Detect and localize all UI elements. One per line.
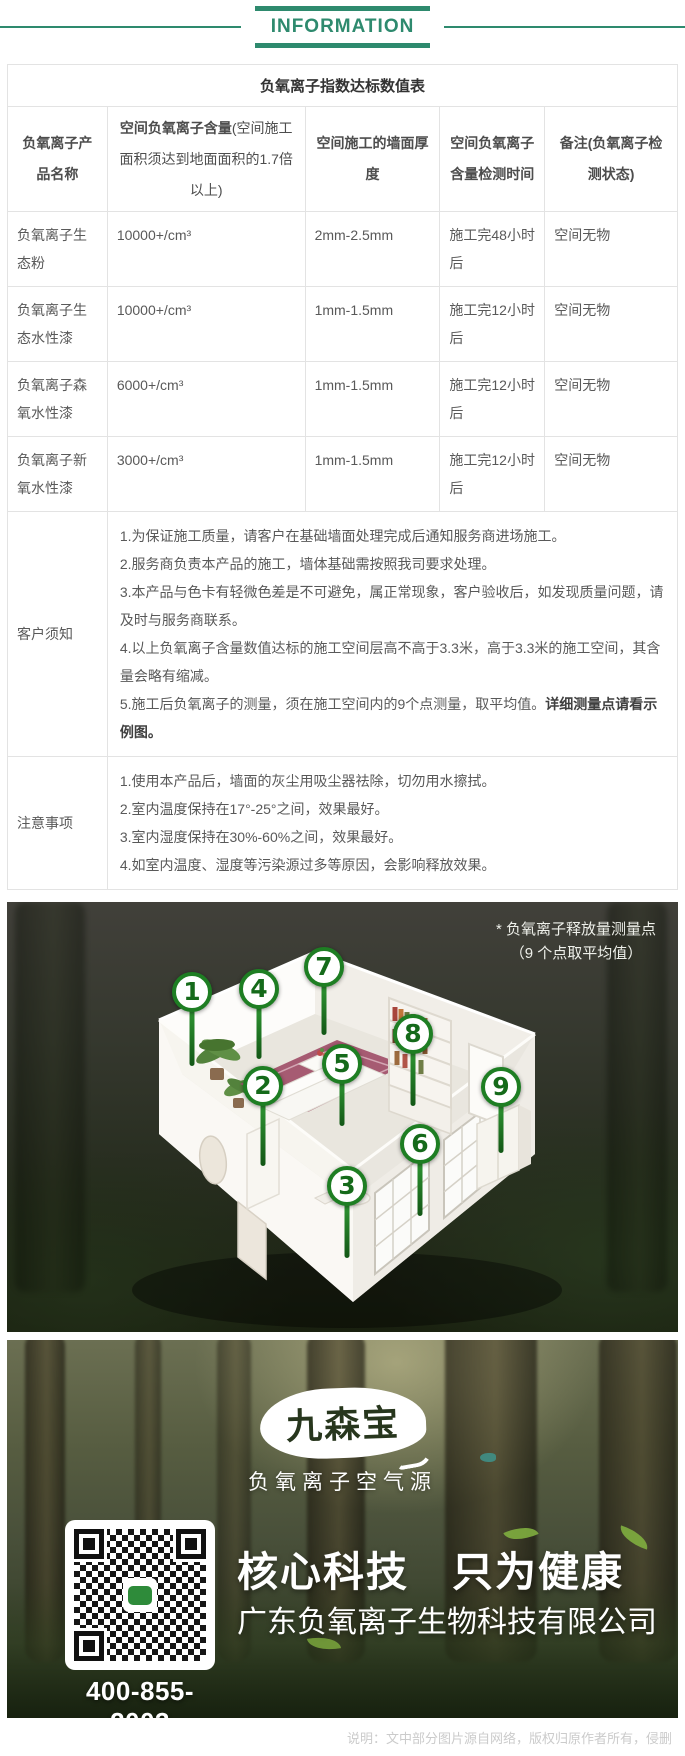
- table-header-row: 负氧离子产品名称 空间负氧离子含量(空间施工面积须达到地面面积的1.7倍以上) …: [8, 107, 678, 212]
- row3-product: 负氧离子森氧水性漆: [8, 362, 108, 437]
- qr-code: [65, 1520, 215, 1670]
- row2-product: 负氧离子生态水性漆: [8, 287, 108, 362]
- qr-pattern: [74, 1529, 206, 1661]
- attention-label: 注意事项: [8, 757, 108, 890]
- row2-test-time: 施工完12小时后: [440, 287, 545, 362]
- company-name: 广东负氧离子生物科技有限公司: [237, 1597, 673, 1641]
- figure-note-line1: * 负氧离子释放量测量点: [496, 918, 656, 941]
- row3-content: 6000+/cm³: [107, 362, 305, 437]
- col-header-test-time: 空间负氧离子含量检测时间: [440, 107, 545, 212]
- row1-test-time: 施工完48小时后: [440, 212, 545, 287]
- notice-item-3: 3.本产品与色卡有轻微色差是不可避免，属正常现象，客户验收后，如发现质量问题，请…: [120, 578, 665, 634]
- attention-content: 1.使用本产品后，墙面的灰尘用吸尘器祛除，切勿用水擦拭。 2.室内温度保持在17…: [107, 757, 677, 890]
- measure-point-8-label: 8: [393, 1014, 433, 1054]
- measure-point-4-label: 4: [239, 969, 279, 1009]
- col-header-product: 负氧离子产品名称: [8, 107, 108, 212]
- customer-notice-label: 客户须知: [8, 512, 108, 757]
- row4-content: 3000+/cm³: [107, 437, 305, 512]
- measure-point-7: 7: [304, 947, 344, 987]
- table-row: 负氧离子森氧水性漆 6000+/cm³ 1mm-1.5mm 施工完12小时后 空…: [8, 362, 678, 437]
- customer-notice-content: 1.为保证施工质量，请客户在基础墙面处理完成后通知服务商进场施工。 2.服务商负…: [107, 512, 677, 757]
- row1-thickness: 2mm-2.5mm: [305, 212, 440, 287]
- row2-content: 10000+/cm³: [107, 287, 305, 362]
- measure-point-2: 2: [243, 1066, 283, 1106]
- row1-note: 空间无物: [545, 212, 678, 287]
- row4-product: 负氧离子新氧水性漆: [8, 437, 108, 512]
- image-source-note: 说明：文中部分图片源自网络，版权归原作者所有，侵删: [0, 1718, 685, 1756]
- measure-point-9: 9: [481, 1067, 521, 1107]
- measure-point-5-label: 5: [322, 1044, 362, 1084]
- row4-note: 空间无物: [545, 437, 678, 512]
- row1-product: 负氧离子生态粉: [8, 212, 108, 287]
- col-header-content-main: 空间负氧离子含量: [120, 120, 232, 136]
- table-title: 负氧离子指数达标数值表: [8, 65, 678, 107]
- col-header-content: 空间负氧离子含量(空间施工面积须达到地面面积的1.7倍以上): [107, 107, 305, 212]
- measure-point-1: 1: [172, 972, 212, 1012]
- header-line-left: [0, 26, 241, 28]
- measure-point-2-label: 2: [243, 1066, 283, 1106]
- measure-point-8: 8: [393, 1014, 433, 1054]
- row4-test-time: 施工完12小时后: [440, 437, 545, 512]
- brand-logo-bubble: 九森宝: [258, 1386, 426, 1462]
- table-row: 负氧离子生态粉 10000+/cm³ 2mm-2.5mm 施工完48小时后 空间…: [8, 212, 678, 287]
- brand-footer-banner: 九森宝 负氧离子空气源 400-855-2003 核心科技 只为健康 广东负氧离…: [7, 1340, 678, 1718]
- table-row: 负氧离子生态水性漆 10000+/cm³ 1mm-1.5mm 施工完12小时后 …: [8, 287, 678, 362]
- row1-content: 10000+/cm³: [107, 212, 305, 287]
- header-line-right: [444, 26, 685, 28]
- attention-item-1: 1.使用本产品后，墙面的灰尘用吸尘器祛除，切勿用水擦拭。: [120, 767, 665, 795]
- qr-finder-icon: [74, 1529, 104, 1559]
- figure-note-line2: （9 个点取平均值）: [496, 942, 656, 965]
- header-title: INFORMATION: [255, 6, 431, 48]
- figure-note: * 负氧离子释放量测量点 （9 个点取平均值）: [496, 918, 656, 965]
- customer-notice-row: 客户须知 1.为保证施工质量，请客户在基础墙面处理完成后通知服务商进场施工。 2…: [8, 512, 678, 757]
- table-row: 负氧离子新氧水性漆 3000+/cm³ 1mm-1.5mm 施工完12小时后 空…: [8, 437, 678, 512]
- row2-thickness: 1mm-1.5mm: [305, 287, 440, 362]
- qr-finder-icon: [74, 1631, 104, 1661]
- attention-item-3: 3.室内湿度保持在30%-60%之间，效果最好。: [120, 823, 665, 851]
- table-title-row: 负氧离子指数达标数值表: [8, 65, 678, 107]
- room-measure-figure: 1 2 3 4 5 6 7 8 9 * 负氧离子释放量测量点 （9 个点取平均值…: [7, 902, 678, 1332]
- notice-item-5-text: 5.施工后负氧离子的测量，须在施工空间内的9个点测量，取平均值。: [120, 696, 545, 712]
- col-header-thickness: 空间施工的墙面厚度: [305, 107, 440, 212]
- brand-tagline: 负氧离子空气源: [7, 1466, 678, 1496]
- brand-name: 九森宝: [285, 1402, 400, 1447]
- measure-point-3: 3: [327, 1166, 367, 1206]
- spec-table: 负氧离子指数达标数值表 负氧离子产品名称 空间负氧离子含量(空间施工面积须达到地…: [7, 64, 678, 890]
- measure-point-6: 6: [400, 1124, 440, 1164]
- attention-row: 注意事项 1.使用本产品后，墙面的灰尘用吸尘器祛除，切勿用水擦拭。 2.室内温度…: [8, 757, 678, 890]
- col-header-note: 备注(负氧离子检测状态): [545, 107, 678, 212]
- measure-point-3-label: 3: [327, 1166, 367, 1206]
- measure-point-5: 5: [322, 1044, 362, 1084]
- measure-point-1-label: 1: [172, 972, 212, 1012]
- attention-item-4: 4.如室内温度、湿度等污染源过多等原因，会影响释放效果。: [120, 851, 665, 879]
- service-phone: 400-855-2003: [57, 1676, 223, 1718]
- row3-thickness: 1mm-1.5mm: [305, 362, 440, 437]
- measure-point-7-label: 7: [304, 947, 344, 987]
- row4-thickness: 1mm-1.5mm: [305, 437, 440, 512]
- measure-point-6-label: 6: [400, 1124, 440, 1164]
- qr-center-logo-icon: [123, 1578, 157, 1612]
- notice-item-1: 1.为保证施工质量，请客户在基础墙面处理完成后通知服务商进场施工。: [120, 522, 665, 550]
- notice-item-5: 5.施工后负氧离子的测量，须在施工空间内的9个点测量，取平均值。详细测量点请看示…: [120, 690, 665, 746]
- footer-slogan: 核心科技 只为健康: [237, 1538, 673, 1598]
- section-header: INFORMATION: [0, 0, 685, 52]
- bird-decoration: [480, 1453, 496, 1462]
- notice-item-2: 2.服务商负责本产品的施工，墙体基础需按照我司要求处理。: [120, 550, 665, 578]
- measure-point-9-label: 9: [481, 1067, 521, 1107]
- row2-note: 空间无物: [545, 287, 678, 362]
- article-page: INFORMATION 负氧离子指数达标数值表 负氧离子产品名称 空间负氧离子含…: [0, 0, 685, 1756]
- notice-item-4: 4.以上负氧离子含量数值达标的施工空间层高不高于3.3米，高于3.3米的施工空间…: [120, 634, 665, 690]
- attention-item-2: 2.室内温度保持在17°-25°之间，效果最好。: [120, 795, 665, 823]
- row3-note: 空间无物: [545, 362, 678, 437]
- brand-mark-icon: [128, 1586, 152, 1605]
- row3-test-time: 施工完12小时后: [440, 362, 545, 437]
- measure-point-4: 4: [239, 969, 279, 1009]
- qr-finder-icon: [176, 1529, 206, 1559]
